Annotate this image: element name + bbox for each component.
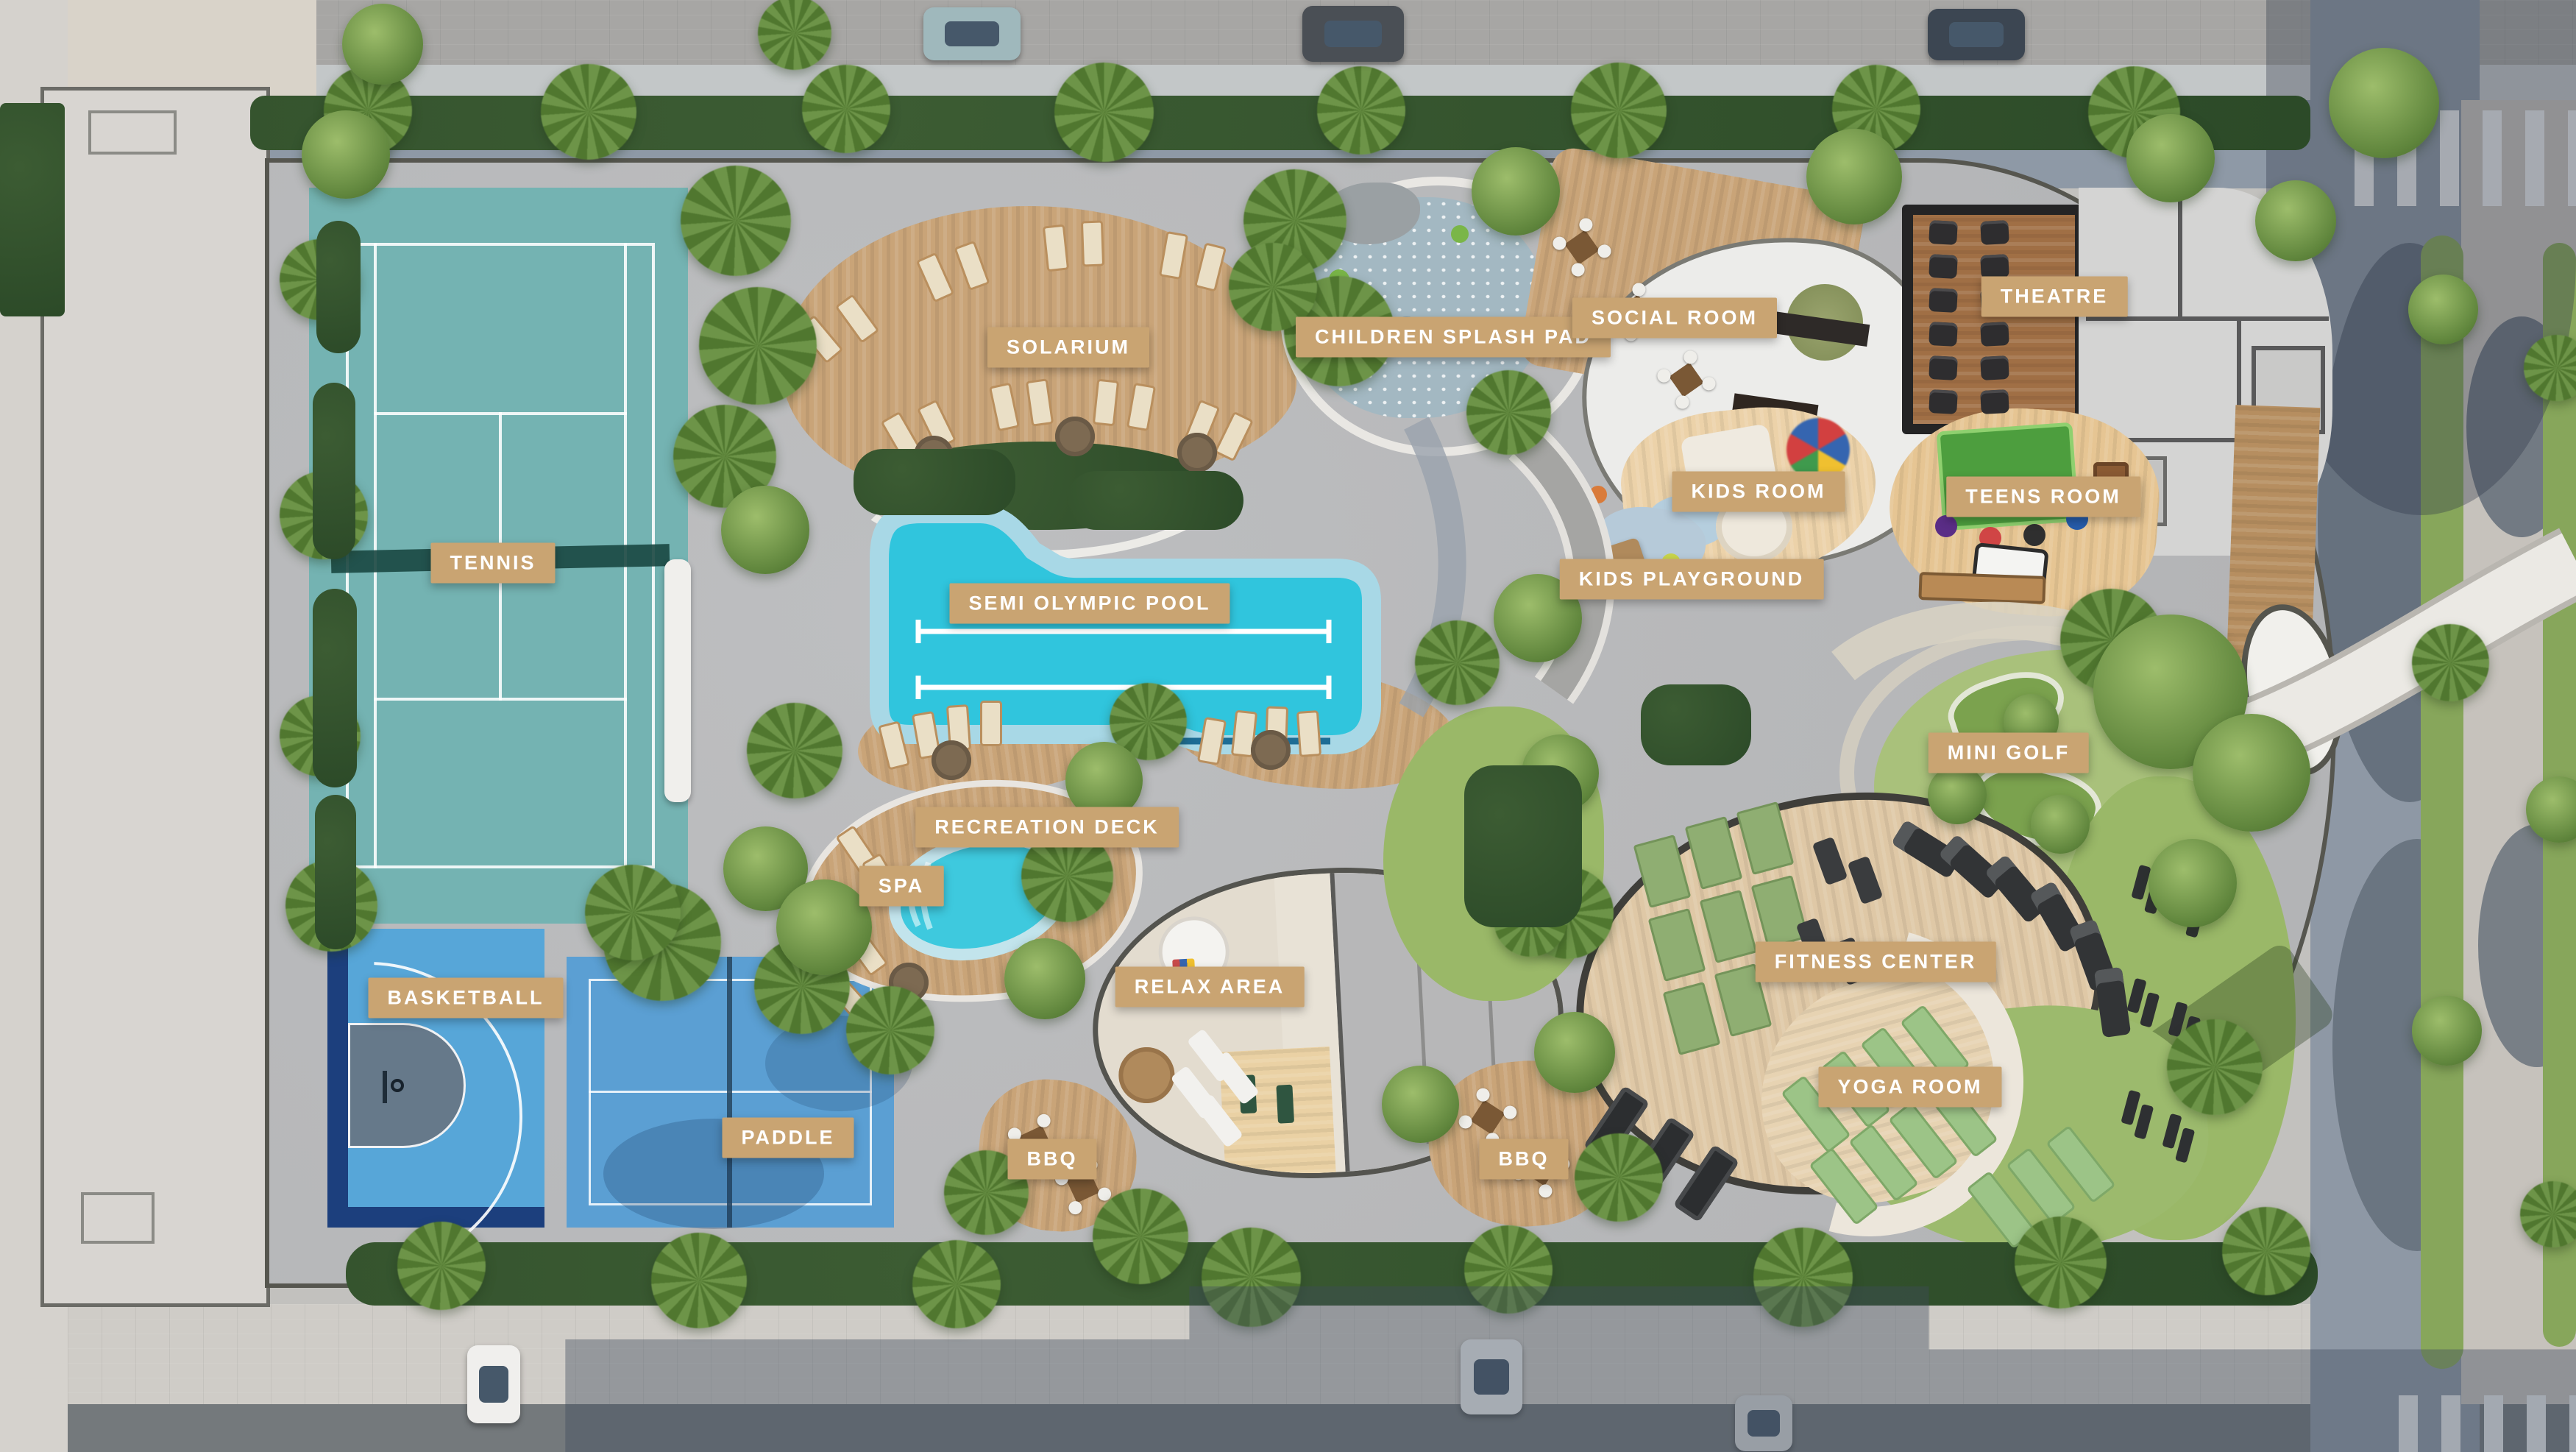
palm-tree-icon: [1317, 66, 1405, 155]
tree-icon: [1382, 1066, 1459, 1143]
theatre-seat: [1980, 220, 2009, 245]
car-icon: [1928, 9, 2025, 60]
palm-tree-icon: [651, 1233, 747, 1328]
palm-tree-icon: [2222, 1207, 2310, 1295]
palm-tree-icon: [912, 1240, 1001, 1328]
dining-table-set: [1653, 346, 1721, 414]
area-label-theatre: THEATRE: [1981, 277, 2128, 317]
tree-icon: [2412, 996, 2482, 1066]
hedge-cluster: [315, 795, 356, 949]
area-label-paddle: PADDLE: [722, 1118, 854, 1158]
area-label-mini-golf: MINI GOLF: [1929, 733, 2089, 773]
theatre-seat: [1929, 389, 1958, 414]
area-label-tennis: TENNIS: [430, 543, 555, 584]
hedge-cluster: [1464, 765, 1582, 927]
pedestrian-bridge: [2250, 561, 2576, 736]
area-label-yoga-room: YOGA ROOM: [1818, 1067, 2001, 1108]
palm-tree-icon: [681, 166, 791, 276]
area-label-recreation-deck: RECREATION DECK: [915, 807, 1179, 848]
dining-table-set: [1548, 213, 1617, 282]
hedge-cluster: [313, 589, 357, 787]
car-icon: [923, 7, 1021, 60]
palm-tree-icon: [802, 65, 890, 153]
palm-tree-icon: [1054, 63, 1154, 162]
chair-icon: [1656, 368, 1672, 383]
chair-icon: [1552, 235, 1567, 251]
area-label-spa: SPA: [859, 866, 944, 907]
lounger: [1043, 224, 1069, 272]
hedge-cluster: [1641, 684, 1751, 765]
theatre-seat: [1980, 355, 2009, 380]
hedge-cluster: [313, 383, 355, 559]
area-label-semi-olympic-pool: SEMI OLYMPIC POOL: [949, 584, 1230, 624]
chair-icon: [1701, 376, 1717, 392]
car-icon: [1302, 6, 1404, 62]
umbrella-icon: [932, 740, 971, 780]
table-icon: [1470, 1099, 1505, 1134]
site-plan: TENNISSOLARIUMCHILDREN SPLASH PADSOCIAL …: [0, 0, 2576, 1452]
car-window: [945, 21, 999, 47]
theatre-seat: [1929, 322, 1958, 347]
tree-icon: [1806, 129, 1902, 224]
area-label-solarium: SOLARIUM: [987, 327, 1149, 368]
theatre-seat: [1929, 220, 1958, 245]
lounger: [980, 701, 1002, 746]
area-label-bbq-east: BBQ: [1480, 1139, 1569, 1180]
area-label-relax-area: RELAX AREA: [1115, 967, 1305, 1007]
area-label-children-splash-pad: CHILDREN SPLASH PAD: [1296, 317, 1611, 358]
theatre-seat: [1929, 254, 1958, 279]
chair-icon: [1597, 244, 1612, 259]
area-label-basketball: BASKETBALL: [369, 978, 564, 1019]
palm-tree-icon: [397, 1222, 486, 1310]
theatre-seat: [1980, 254, 2009, 279]
palm-tree-icon: [585, 865, 681, 960]
car-window: [479, 1366, 508, 1403]
tree-icon: [2149, 839, 2237, 927]
tree-icon: [2329, 48, 2439, 158]
hedge-cluster: [854, 449, 1015, 515]
tree-icon: [302, 110, 390, 199]
hedge-cluster: [1067, 471, 1243, 530]
tree-icon: [2031, 795, 2090, 854]
chair-icon: [1578, 217, 1594, 233]
tree-icon: [776, 879, 872, 975]
theatre-seat: [1929, 355, 1958, 380]
palm-tree-icon: [747, 703, 842, 798]
table-icon: [1564, 230, 1599, 264]
car-window: [1949, 22, 2004, 47]
chair-icon: [1502, 1105, 1518, 1120]
theatre-seat: [1980, 389, 2009, 414]
chair-icon: [1675, 394, 1690, 410]
tree-icon: [2255, 180, 2336, 261]
table-icon: [1669, 362, 1703, 397]
chair-icon: [1458, 1114, 1473, 1130]
lounger: [1296, 710, 1321, 757]
palm-tree-icon: [846, 986, 934, 1074]
palm-tree-icon: [1575, 1133, 1663, 1222]
tree-icon: [2126, 114, 2215, 202]
theatre-seat: [1929, 288, 1958, 313]
chair-icon: [1683, 350, 1698, 365]
area-label-kids-room: KIDS ROOM: [1672, 472, 1845, 512]
area-label-kids-playground: KIDS PLAYGROUND: [1560, 559, 1824, 600]
chair-icon: [1570, 262, 1586, 277]
chair-icon: [1631, 282, 1647, 297]
palm-tree-icon: [1415, 620, 1500, 705]
tree-icon: [1534, 1012, 1615, 1093]
theatre-seat: [1980, 322, 2009, 347]
umbrella-icon: [1177, 433, 1217, 472]
area-label-fitness-center: FITNESS CENTER: [1756, 942, 1996, 982]
palm-tree-icon: [2015, 1217, 2107, 1308]
lounger: [1081, 220, 1104, 266]
umbrella-icon: [1055, 417, 1095, 456]
tree-icon: [2193, 714, 2310, 832]
tree-icon: [721, 486, 809, 574]
palm-tree-icon: [1466, 370, 1551, 455]
palm-tree-icon: [1571, 63, 1667, 158]
area-label-bbq-west: BBQ: [1008, 1139, 1097, 1180]
tree-icon: [1472, 147, 1560, 235]
area-label-social-room: SOCIAL ROOM: [1572, 298, 1777, 339]
chair-icon: [1538, 1183, 1553, 1199]
palm-tree-icon: [2167, 1019, 2263, 1115]
tree-icon: [2408, 275, 2478, 344]
hedge-cluster: [316, 221, 361, 353]
chair-icon: [1475, 1087, 1491, 1102]
car-icon: [467, 1345, 520, 1423]
car-window: [1324, 21, 1381, 47]
palm-tree-icon: [2412, 624, 2489, 701]
area-label-teens-room: TEENS ROOM: [1946, 477, 2140, 517]
tree-icon: [1928, 765, 1987, 824]
palm-tree-icon: [699, 287, 817, 405]
palm-tree-icon: [541, 64, 636, 160]
palm-tree-icon: [1093, 1189, 1188, 1284]
tree-icon: [342, 4, 423, 85]
tree-icon: [1004, 938, 1085, 1019]
umbrella-icon: [1251, 730, 1291, 770]
